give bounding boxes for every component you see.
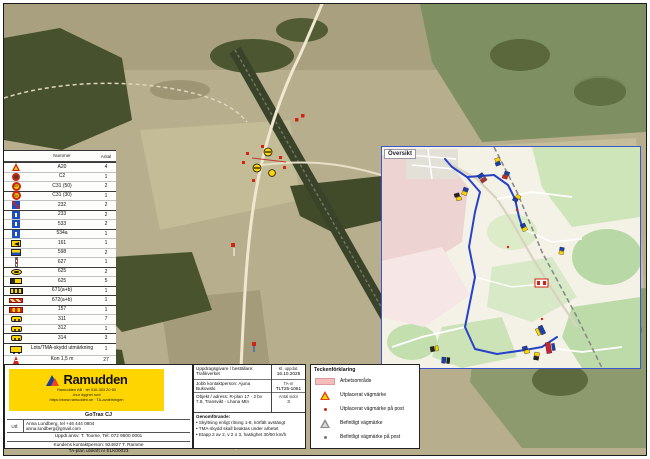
sign-code: 627 bbox=[28, 260, 96, 265]
table-row: Lots/TMA-skydd utmärkning1 bbox=[4, 343, 116, 355]
sign-code: 671(a+b) bbox=[28, 288, 96, 293]
sign-code: 672(a+b) bbox=[28, 298, 96, 303]
table-row: 1611 bbox=[4, 238, 116, 248]
contractor-name: GoTrax CJ bbox=[5, 412, 192, 418]
sign-code: C31 (50) bbox=[28, 184, 96, 189]
sign-count: 27 bbox=[96, 357, 116, 363]
sign-count: 3 bbox=[96, 335, 116, 341]
sign-count: 1 bbox=[96, 297, 116, 303]
table-row: 5332 bbox=[4, 219, 116, 229]
sign-count: 5 bbox=[96, 278, 116, 284]
table-row: 534a1 bbox=[4, 229, 116, 239]
sign-code: 598 bbox=[28, 250, 96, 255]
sign-code: 312 bbox=[28, 326, 96, 331]
print-number-line: TA-plan utskrift nr ELK00023 bbox=[5, 448, 192, 454]
legend-item: Utplacerat vägmärke på post bbox=[311, 402, 419, 416]
blue-sign-icon bbox=[12, 230, 20, 238]
executor-lines: Anna Lundberg, tel +46 444 0804anna.lund… bbox=[24, 420, 190, 432]
cone-icon bbox=[13, 356, 19, 364]
road-closure-icon bbox=[535, 279, 548, 287]
striped-screen-icon bbox=[10, 288, 23, 294]
sign-count: 1 bbox=[96, 240, 116, 246]
table-row: C21 bbox=[4, 172, 116, 182]
meta-ta-number: TA-nr TLT25-1051 bbox=[272, 380, 305, 393]
barrier-icon bbox=[9, 298, 23, 303]
sign-table-header: Nummer Antal bbox=[4, 151, 116, 162]
legend-item: Utplacerat vägmärke bbox=[311, 388, 419, 402]
blue-sign-icon bbox=[12, 220, 20, 228]
notes-section: Genomförande: • Skyltning enligt ritning… bbox=[194, 413, 305, 439]
table-row: 3143 bbox=[4, 333, 116, 343]
note-item: • Etapp 2 av 2, v 2 o 3, hastighet 30/50… bbox=[196, 432, 303, 438]
prohibition-circle-icon bbox=[12, 173, 20, 181]
table-row: 1571 bbox=[4, 305, 116, 315]
blue-sign-icon bbox=[12, 211, 20, 219]
legend-item: Arbetsområde bbox=[311, 374, 419, 388]
table-row: 3121 bbox=[4, 324, 116, 334]
legend-items: ArbetsområdeUtplacerat vägmärkeUtplacera… bbox=[311, 374, 419, 444]
table-row: 6255 bbox=[4, 276, 116, 286]
company-contact-lines: Ramudden AB · tel 010-303 20 60Jour dygn… bbox=[9, 388, 164, 403]
legend-item: Befintligt vägmärke på post bbox=[311, 430, 419, 444]
company-block: Ramudden Ramudden AB · tel 010-303 20 60… bbox=[4, 364, 193, 449]
sign-count: 2 bbox=[96, 183, 116, 189]
sign-count: 1 bbox=[96, 193, 116, 199]
sign-code: Lots/TMA-skydd utmärkning bbox=[28, 346, 96, 351]
sign-count: 2 bbox=[96, 250, 116, 256]
sign-code: 625 bbox=[28, 269, 96, 274]
inset-map-label: Översikt bbox=[384, 149, 416, 159]
legend-title: Teckenförklaring bbox=[311, 365, 419, 374]
sign-code: 534a bbox=[28, 231, 96, 236]
sign-quantity-table: Nummer Antal A204C21C31 (50)2C31 (30)123… bbox=[4, 150, 116, 367]
traffic-screen-icon bbox=[10, 278, 22, 284]
legend-item-label: Befintligt vägmärke bbox=[340, 420, 383, 426]
info-meta-column: Kl. uppdat. 16.10.2025 TA-nr TLT25-1051 … bbox=[271, 365, 305, 412]
sign-code: C31 (30) bbox=[28, 193, 96, 198]
speed-30-icon bbox=[12, 191, 21, 200]
inset-overview-map bbox=[381, 146, 641, 369]
sign-code: 311 bbox=[28, 317, 96, 322]
executor-label: Utf. bbox=[7, 420, 24, 432]
existing-sign-triangle-icon bbox=[320, 419, 330, 428]
table-row: 6252 bbox=[4, 267, 116, 277]
sign-code: Kon 1,5 m bbox=[28, 357, 96, 362]
sign-code: A20 bbox=[28, 165, 96, 170]
table-row: 6271 bbox=[4, 257, 116, 267]
sign-count: 2 bbox=[96, 221, 116, 227]
table-row: 5982 bbox=[4, 248, 116, 258]
ramudden-logo-icon bbox=[46, 374, 61, 386]
warning-lamp-icon bbox=[11, 316, 22, 322]
delineator-post-icon bbox=[15, 257, 18, 267]
sign-code: 233 bbox=[28, 212, 96, 217]
speed-50-icon bbox=[12, 182, 21, 191]
table-row: 671(a+b)1 bbox=[4, 286, 116, 296]
legend-item-label: Arbetsområde bbox=[340, 378, 371, 384]
table-row: C31 (30)1 bbox=[4, 191, 116, 201]
sign-code: C2 bbox=[28, 174, 96, 179]
warning-lamp-icon bbox=[11, 335, 22, 341]
warning-triangle-icon bbox=[12, 163, 20, 171]
sign-count: 7 bbox=[96, 316, 116, 322]
legend-item: Befintligt vägmärke bbox=[311, 416, 419, 430]
info-row-client: Uppdragsgivare / beställare: Trafikverke… bbox=[194, 365, 271, 380]
manager-line: Uppdr.ansv: T. Toome, Tel: 072 9500 0001 bbox=[5, 433, 192, 439]
notes-list: • Skyltning enligt ritning 1-8, körfält … bbox=[196, 420, 303, 438]
info-row-contact: Jobb kontaktperson: Ajuna Bukowski bbox=[194, 380, 271, 393]
sign-code: 533 bbox=[28, 222, 96, 227]
ta-plan-sheet: Nummer Antal A204C21C31 (50)2C31 (30)123… bbox=[0, 0, 650, 459]
sign-code: 157 bbox=[28, 307, 96, 312]
sign-code: 625 bbox=[28, 279, 96, 284]
legend-block: Teckenförklaring ArbetsområdeUtplacerat … bbox=[310, 364, 420, 449]
ramudden-logo-word: Ramudden bbox=[64, 372, 128, 387]
column-header-name: Nummer bbox=[28, 154, 96, 159]
yellow-arrow-sign-icon bbox=[11, 240, 21, 247]
legend-item-label: Befintligt vägmärke på post bbox=[340, 434, 400, 440]
sign-trailer-icon bbox=[10, 346, 22, 353]
ramudden-logo-box: Ramudden Ramudden AB · tel 010-303 20 60… bbox=[9, 369, 164, 411]
warning-lamp-icon bbox=[11, 326, 22, 332]
meta-page-count: Antal sidor 3 bbox=[272, 393, 305, 412]
sign-table-body: A204C21C31 (50)2C31 (30)1232223325332534… bbox=[4, 162, 116, 383]
table-row: C31 (50)2 bbox=[4, 181, 116, 191]
table-row: 3117 bbox=[4, 314, 116, 324]
executor-contact-line: anna.lundberg@gmail.com bbox=[26, 426, 188, 432]
red-striped-barrier-icon bbox=[9, 307, 23, 313]
legend-item-label: Utplacerat vägmärke på post bbox=[340, 406, 404, 412]
table-row: A204 bbox=[4, 162, 116, 172]
sign-count: 2 bbox=[96, 269, 116, 275]
column-header-count: Antal bbox=[96, 154, 116, 159]
customer-contact-line: Kundens kontaktperson: 924927 T. Ramme bbox=[7, 441, 190, 449]
sign-count: 1 bbox=[96, 307, 116, 313]
yellow-blue-sign-icon bbox=[11, 249, 21, 256]
table-row: Kon 1,5 m27 bbox=[4, 355, 116, 365]
sign-code: 232 bbox=[28, 203, 96, 208]
info-left-rows: Uppdragsgivare / beställare: Trafikverke… bbox=[194, 365, 271, 412]
workzone-swatch bbox=[315, 378, 335, 385]
legend-item-label: Utplacerat vägmärke bbox=[340, 392, 386, 398]
sign-count: 2 bbox=[96, 212, 116, 218]
existing-sign-post-icon bbox=[324, 436, 327, 439]
sign-count: 1 bbox=[96, 259, 116, 265]
table-row: 672(a+b)1 bbox=[4, 295, 116, 305]
new-sign-post-icon bbox=[324, 408, 327, 411]
info-block: Uppdragsgivare / beställare: Trafikverke… bbox=[193, 364, 306, 449]
sign-count: 1 bbox=[96, 288, 116, 294]
new-sign-triangle-icon bbox=[320, 391, 330, 400]
sign-code: 161 bbox=[28, 241, 96, 246]
table-row: 2332 bbox=[4, 210, 116, 220]
meta-updated: Kl. uppdat. 16.10.2025 bbox=[272, 365, 305, 380]
sign-count: 4 bbox=[96, 164, 116, 170]
blue-red-sign-icon bbox=[12, 201, 20, 209]
yellow-oval-sign-icon bbox=[11, 269, 22, 275]
sign-count: 1 bbox=[96, 174, 116, 180]
sign-count: 1 bbox=[96, 326, 116, 332]
sign-code: 314 bbox=[28, 336, 96, 341]
sign-count: 1 bbox=[96, 346, 116, 352]
info-row-object: Objekt / adress: R-plan 17 - 2 bv 7.8, T… bbox=[194, 393, 271, 412]
sign-count: 1 bbox=[96, 231, 116, 237]
sign-count: 2 bbox=[96, 202, 116, 208]
company-contact-line: https://www.ramudden.se · TA-avdelningen bbox=[9, 398, 164, 403]
executor-contact: Utf. Anna Lundberg, tel +46 444 0804anna… bbox=[7, 419, 190, 433]
table-row: 2322 bbox=[4, 200, 116, 210]
